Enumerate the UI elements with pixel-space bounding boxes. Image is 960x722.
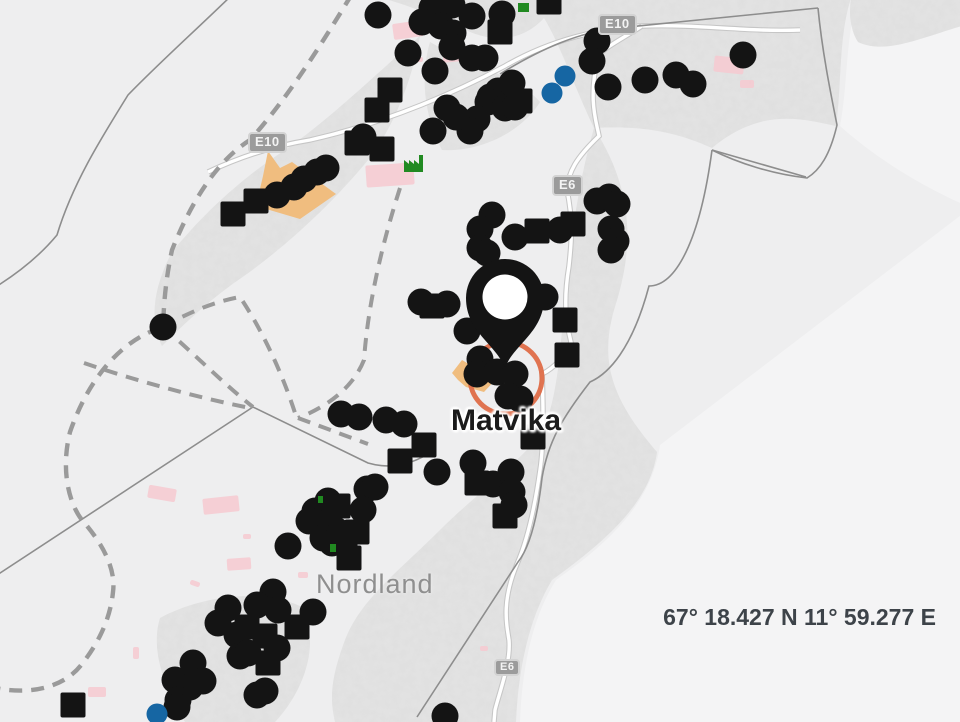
site-marker-square[interactable] bbox=[326, 494, 351, 519]
site-marker-circle[interactable] bbox=[365, 2, 392, 29]
site-marker-square[interactable] bbox=[244, 189, 269, 214]
site-marker-square[interactable] bbox=[465, 471, 490, 496]
road-shield-e6: E6 bbox=[494, 659, 520, 676]
site-marker-circle[interactable] bbox=[443, 104, 470, 131]
restricted-zone bbox=[298, 572, 308, 578]
site-marker-blue[interactable] bbox=[542, 83, 563, 104]
site-marker-circle[interactable] bbox=[680, 71, 707, 98]
restricted-zone bbox=[88, 687, 106, 697]
site-marker-circle[interactable] bbox=[164, 694, 191, 721]
site-marker-circle[interactable] bbox=[150, 314, 177, 341]
site-marker-circle[interactable] bbox=[579, 48, 606, 75]
site-marker-square[interactable] bbox=[256, 651, 281, 676]
site-marker-circle[interactable] bbox=[420, 118, 447, 145]
region-label: Nordland bbox=[316, 569, 434, 600]
site-marker-circle[interactable] bbox=[604, 191, 631, 218]
pin-hole bbox=[483, 275, 528, 320]
restricted-zone bbox=[202, 495, 239, 515]
restricted-zone bbox=[227, 557, 252, 571]
site-marker-square[interactable] bbox=[525, 219, 550, 244]
site-marker-square[interactable] bbox=[337, 546, 362, 571]
site-marker-square[interactable] bbox=[493, 504, 518, 529]
site-marker-circle[interactable] bbox=[350, 497, 377, 524]
site-marker-circle[interactable] bbox=[632, 67, 659, 94]
road-shield-e6: E6 bbox=[552, 175, 583, 196]
place-label: Matvika bbox=[406, 404, 606, 438]
site-marker-square[interactable] bbox=[420, 294, 445, 319]
site-marker-circle[interactable] bbox=[346, 404, 373, 431]
site-marker-circle[interactable] bbox=[595, 74, 622, 101]
site-marker-square[interactable] bbox=[537, 0, 562, 15]
site-marker-square[interactable] bbox=[388, 449, 413, 474]
site-marker-square[interactable] bbox=[370, 137, 395, 162]
green-site-icon[interactable] bbox=[330, 544, 336, 552]
site-marker-square[interactable] bbox=[345, 131, 370, 156]
restricted-zone bbox=[243, 534, 251, 539]
site-marker-circle[interactable] bbox=[275, 533, 302, 560]
site-marker-circle[interactable] bbox=[190, 668, 217, 695]
site-marker-square[interactable] bbox=[285, 615, 310, 640]
restricted-zone bbox=[740, 80, 754, 88]
site-marker-circle[interactable] bbox=[472, 45, 499, 72]
site-marker-square[interactable] bbox=[221, 202, 246, 227]
restricted-zone bbox=[133, 647, 139, 659]
site-marker-square[interactable] bbox=[61, 693, 86, 718]
site-marker-circle[interactable] bbox=[422, 58, 449, 85]
green-site-icon[interactable] bbox=[518, 3, 529, 12]
site-marker-circle[interactable] bbox=[424, 459, 451, 486]
site-marker-circle[interactable] bbox=[362, 474, 389, 501]
map-viewport[interactable]: E10E10E6E6 Matvika Nordland 67° 18.427 N… bbox=[0, 0, 960, 722]
site-marker-square[interactable] bbox=[488, 20, 513, 45]
site-marker-square[interactable] bbox=[561, 212, 586, 237]
factory-icon[interactable] bbox=[404, 155, 423, 172]
site-marker-square[interactable] bbox=[253, 624, 278, 649]
site-marker-square[interactable] bbox=[365, 98, 390, 123]
coordinate-readout: 67° 18.427 N 11° 59.277 E bbox=[663, 604, 936, 631]
restricted-zone bbox=[147, 485, 177, 503]
site-marker-circle[interactable] bbox=[730, 42, 757, 69]
site-marker-square[interactable] bbox=[553, 308, 578, 333]
site-marker-blue[interactable] bbox=[555, 66, 576, 87]
green-site-icon[interactable] bbox=[318, 496, 323, 503]
road-shield-e10: E10 bbox=[248, 132, 287, 153]
site-marker-circle[interactable] bbox=[252, 678, 279, 705]
site-marker-circle[interactable] bbox=[395, 40, 422, 67]
restricted-zone bbox=[189, 579, 200, 587]
site-marker-circle[interactable] bbox=[502, 224, 529, 251]
site-marker-circle[interactable] bbox=[598, 237, 625, 264]
road-shield-e10: E10 bbox=[598, 14, 637, 35]
site-marker-circle[interactable] bbox=[313, 155, 340, 182]
restricted-zone bbox=[480, 646, 488, 651]
site-marker-square[interactable] bbox=[555, 343, 580, 368]
site-marker-square[interactable] bbox=[508, 89, 533, 114]
